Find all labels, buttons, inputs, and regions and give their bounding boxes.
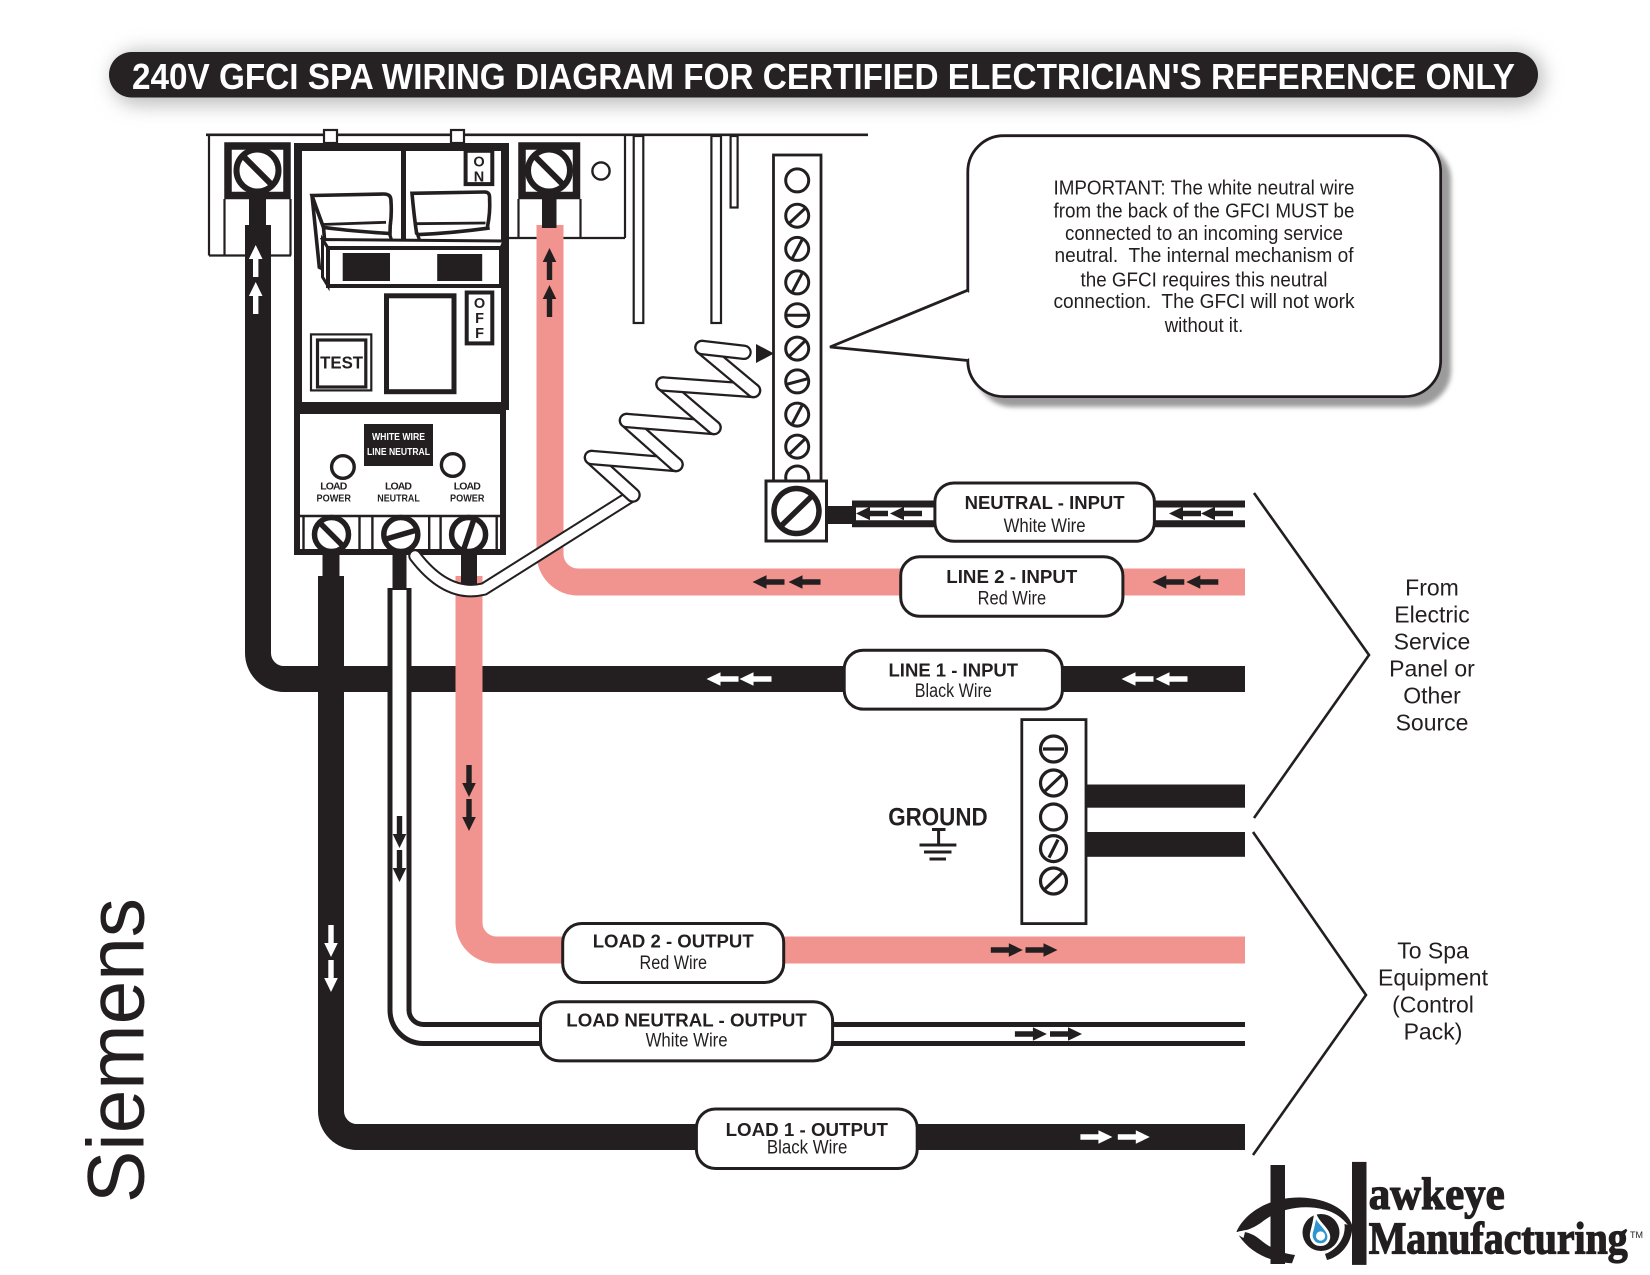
svg-text:neutral. The internal mechani: neutral. The internal mechanism of	[1055, 245, 1354, 267]
svg-text:From: From	[1405, 575, 1459, 601]
svg-text:White Wire: White Wire	[646, 1031, 728, 1052]
svg-text:LINE 2 - INPUT: LINE 2 - INPUT	[946, 566, 1078, 587]
svg-text:Other: Other	[1403, 683, 1461, 709]
svg-text:without it.: without it.	[1164, 315, 1243, 337]
svg-text:from the back of the GFCI MUST: from the back of the GFCI MUST be	[1054, 201, 1355, 223]
svg-text:awkeye: awkeye	[1369, 1168, 1505, 1219]
svg-text:LOAD: LOAD	[385, 481, 412, 493]
svg-text:Electric: Electric	[1394, 602, 1469, 628]
svg-text:NEUTRAL: NEUTRAL	[377, 492, 420, 504]
svg-text:White Wire: White Wire	[1004, 516, 1086, 537]
svg-text:F: F	[475, 311, 484, 327]
svg-text:Red Wire: Red Wire	[978, 589, 1047, 610]
svg-text:N: N	[474, 170, 484, 186]
svg-text:LOAD 2 - OUTPUT: LOAD 2 - OUTPUT	[593, 931, 755, 952]
svg-text:LINE 1 - INPUT: LINE 1 - INPUT	[889, 659, 1019, 680]
svg-text:Black Wire: Black Wire	[915, 681, 992, 702]
svg-text:O: O	[473, 155, 484, 171]
svg-text:Siemens: Siemens	[72, 898, 162, 1203]
svg-text:connection. The GFCI will not: connection. The GFCI will not work	[1054, 291, 1356, 313]
svg-text:Pack): Pack)	[1404, 1019, 1463, 1045]
svg-text:GROUND: GROUND	[888, 803, 988, 831]
svg-text:POWER: POWER	[450, 492, 485, 504]
svg-text:Service: Service	[1394, 629, 1471, 655]
svg-text:POWER: POWER	[317, 492, 352, 504]
svg-text:the GFCI requires this neutral: the GFCI requires this neutral	[1081, 270, 1328, 292]
svg-text:LOAD: LOAD	[320, 481, 347, 493]
svg-text:Source: Source	[1396, 710, 1469, 736]
svg-text:LINE NEUTRAL: LINE NEUTRAL	[367, 446, 430, 458]
svg-text:(Control: (Control	[1392, 992, 1474, 1018]
svg-text:Red Wire: Red Wire	[640, 953, 708, 974]
svg-text:TEST: TEST	[320, 353, 363, 373]
svg-text:connected to an incoming servi: connected to an incoming service	[1065, 223, 1343, 245]
svg-text:IMPORTANT: The white neutral w: IMPORTANT: The white neutral wire	[1054, 178, 1355, 200]
svg-text:NEUTRAL - INPUT: NEUTRAL - INPUT	[965, 492, 1126, 513]
svg-text:Black Wire: Black Wire	[767, 1138, 848, 1159]
svg-text:O: O	[474, 296, 485, 312]
svg-text:LOAD NEUTRAL - OUTPUT: LOAD NEUTRAL - OUTPUT	[566, 1010, 807, 1031]
svg-text:F: F	[475, 326, 484, 342]
svg-text:To Spa: To Spa	[1397, 938, 1469, 964]
svg-text:Manufacturing: Manufacturing	[1369, 1213, 1628, 1264]
svg-text:LOAD: LOAD	[454, 481, 481, 493]
svg-text:TM: TM	[1630, 1230, 1643, 1240]
svg-text:Equipment: Equipment	[1378, 965, 1489, 991]
svg-text:WHITE WIRE: WHITE WIRE	[372, 431, 425, 443]
svg-text:Panel or: Panel or	[1389, 656, 1475, 682]
svg-text:240V GFCI SPA WIRING DIAGRAM F: 240V GFCI SPA WIRING DIAGRAM FOR CERTIFI…	[132, 56, 1515, 97]
